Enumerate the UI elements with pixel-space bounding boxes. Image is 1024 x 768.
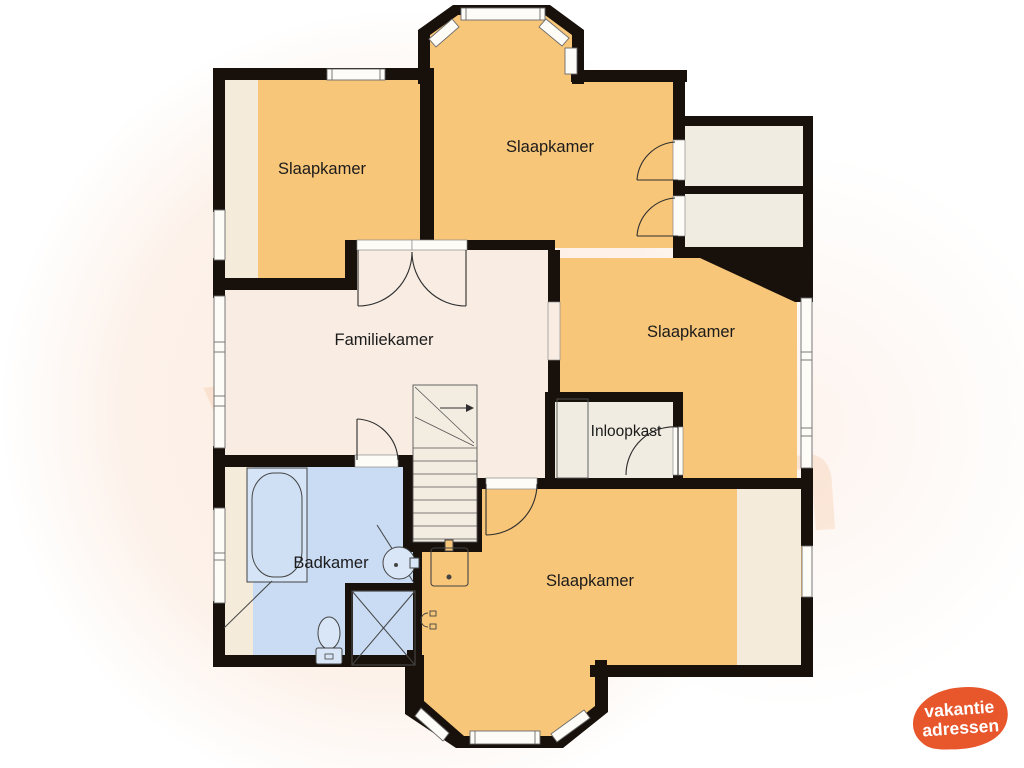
room-storage-closet-1 bbox=[683, 126, 803, 186]
passage-opening bbox=[548, 302, 560, 360]
wall-segment bbox=[673, 180, 685, 196]
label-walk-in-closet: Inloopkast bbox=[591, 423, 662, 440]
sloped-ceiling-strip bbox=[737, 486, 801, 669]
window bbox=[327, 69, 385, 80]
sloped-ceiling-strip bbox=[224, 80, 258, 285]
wall-segment bbox=[801, 597, 813, 677]
sink-tap bbox=[410, 558, 419, 568]
sink-drain bbox=[394, 563, 398, 567]
wall-segment bbox=[398, 455, 410, 467]
toilet-bowl bbox=[318, 617, 340, 649]
wall-segment bbox=[801, 486, 813, 546]
floor-plan-page: vakantie adressen bbox=[0, 0, 1024, 768]
label-bedroom-bottom: Slaapkamer bbox=[546, 572, 635, 590]
wall-segment bbox=[403, 455, 413, 552]
washbasin-drain bbox=[447, 575, 452, 580]
window bbox=[801, 298, 812, 468]
window bbox=[214, 210, 225, 260]
label-bedroom-top-left: Slaapkamer bbox=[278, 160, 367, 178]
wall-segment bbox=[803, 116, 813, 247]
wall-segment bbox=[590, 665, 813, 677]
wall-segment bbox=[673, 392, 683, 427]
wall-segment bbox=[467, 240, 555, 250]
wall-segment bbox=[213, 278, 357, 290]
wall-segment bbox=[675, 116, 813, 126]
label-family-room: Familiekamer bbox=[334, 331, 434, 349]
toilet-tank bbox=[316, 648, 342, 664]
wall-segment bbox=[571, 70, 687, 82]
wall-segment bbox=[545, 392, 683, 402]
window bbox=[470, 731, 540, 744]
wall-segment bbox=[213, 446, 225, 510]
window bbox=[214, 296, 225, 448]
floor-plan-canvas: vakantie adressen bbox=[0, 0, 1024, 768]
wall-segment bbox=[545, 392, 555, 488]
wall-segment bbox=[213, 601, 225, 667]
window bbox=[802, 546, 812, 597]
wall-segment bbox=[537, 478, 813, 489]
door-frame bbox=[673, 196, 685, 236]
wall-segment bbox=[213, 68, 225, 212]
door-frame bbox=[357, 240, 412, 250]
wall-segment bbox=[213, 258, 225, 298]
door-frame bbox=[486, 478, 537, 489]
wall-segment bbox=[548, 250, 560, 302]
door-frame bbox=[673, 140, 685, 180]
wall-segment bbox=[683, 186, 803, 194]
wall-segment bbox=[345, 240, 357, 290]
window bbox=[565, 48, 577, 74]
wall-segment bbox=[420, 78, 434, 248]
room-storage-closet-2 bbox=[683, 194, 803, 247]
wall-segment bbox=[213, 68, 434, 80]
washbasin-tap bbox=[445, 540, 453, 551]
label-bedroom-top-center: Slaapkamer bbox=[506, 138, 595, 156]
room-walk-in-closet bbox=[553, 400, 675, 480]
room-bedroom-top-center bbox=[428, 78, 681, 248]
label-bedroom-right: Slaapkamer bbox=[647, 323, 736, 341]
wall-segment bbox=[224, 455, 355, 467]
window bbox=[461, 8, 545, 20]
door-frame bbox=[355, 455, 398, 467]
door-frame bbox=[412, 240, 467, 250]
wall-segment bbox=[673, 78, 685, 140]
window bbox=[214, 508, 225, 603]
wall-segment bbox=[352, 583, 418, 591]
staircase bbox=[413, 385, 477, 542]
label-bathroom: Badkamer bbox=[293, 554, 369, 572]
